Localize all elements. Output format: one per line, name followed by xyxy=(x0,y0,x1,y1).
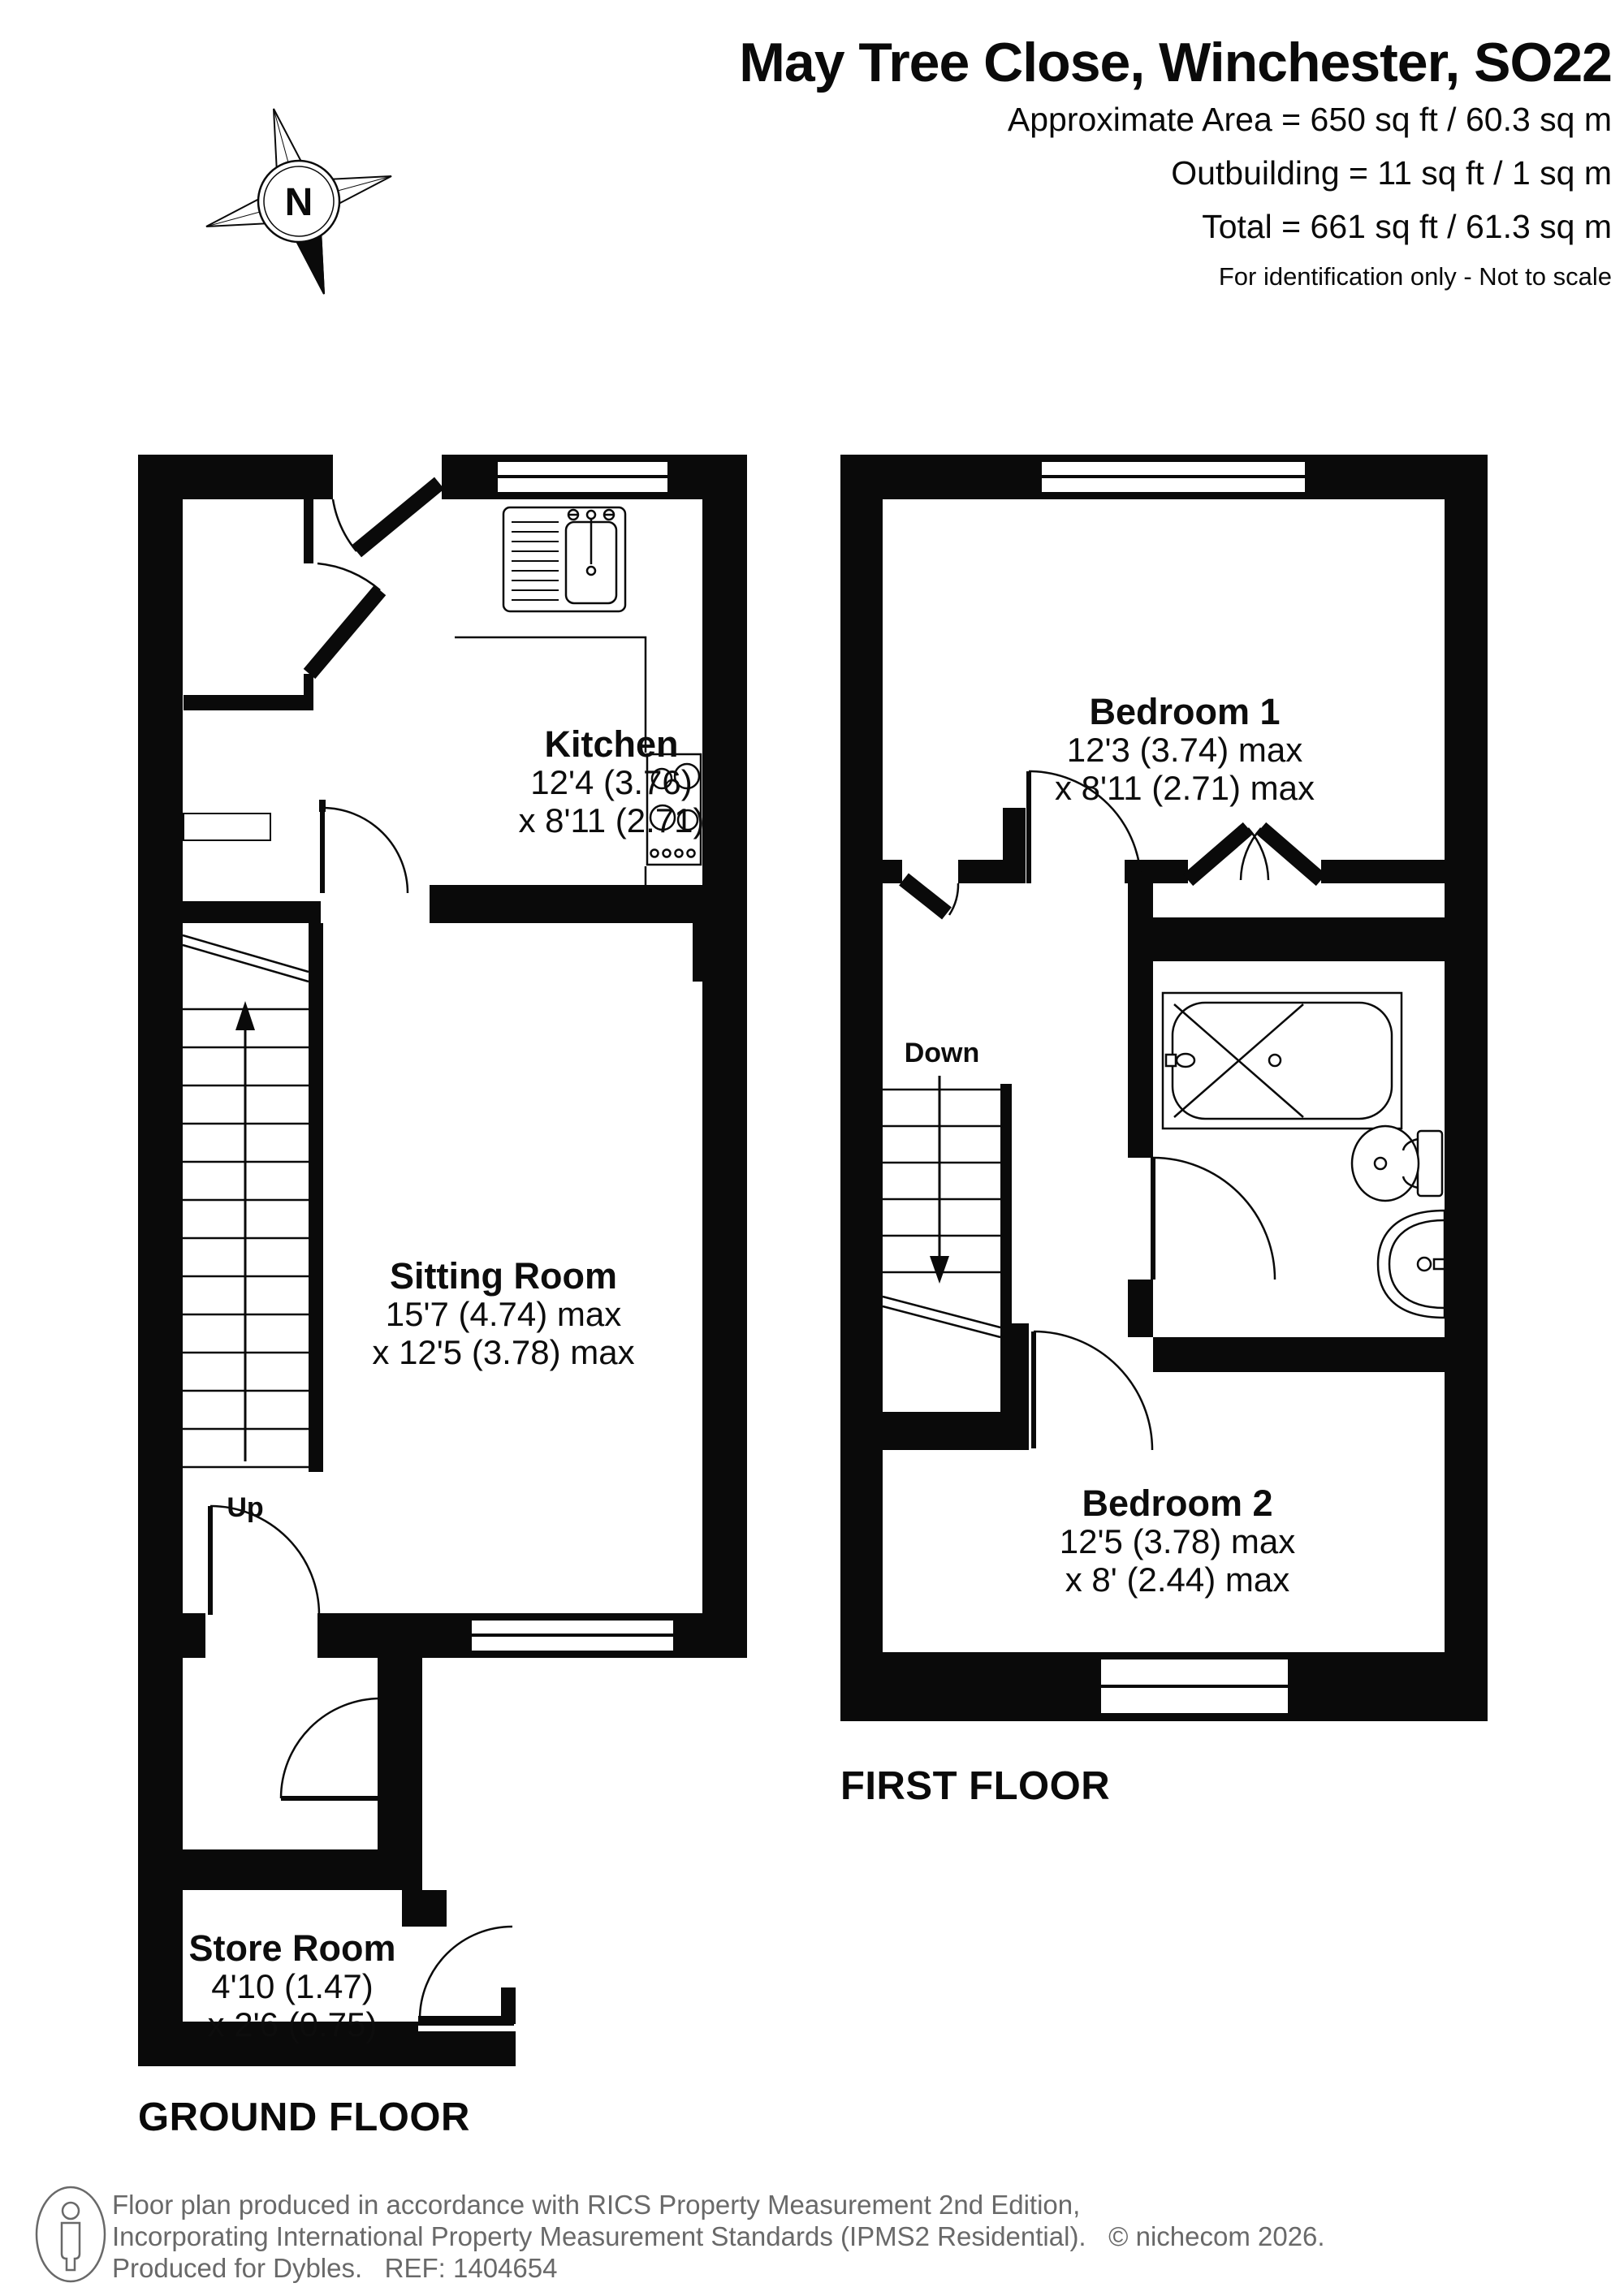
first-floor-caption: FIRST FLOOR xyxy=(840,1763,1110,1809)
bedroom1-name: Bedroom 1 xyxy=(1022,693,1347,731)
header: May Tree Close, Winchester, SO22 Approxi… xyxy=(475,32,1612,300)
bath-icon xyxy=(1163,993,1402,1129)
bedroom1-dim1: 12'3 (3.74) max xyxy=(1022,731,1347,769)
kitchen-dim2: x 8'11 (2.71) xyxy=(449,801,774,839)
down-arrow-head xyxy=(930,1256,949,1284)
washbasin-icon xyxy=(1378,1211,1445,1318)
bedroom2-dim1: 12'5 (3.78) max xyxy=(1015,1522,1340,1560)
bifold-door-right-leaf xyxy=(1261,828,1321,880)
store-door-arc xyxy=(420,1927,512,2019)
floorplan-page: { "header": { "title": "May Tree Close, … xyxy=(0,0,1624,2296)
ground-doors xyxy=(210,483,514,2026)
compass-icon: N xyxy=(195,85,406,304)
kitchen-name: Kitchen xyxy=(449,725,774,763)
front-door-leaf xyxy=(356,483,439,551)
bathroom-door-arc xyxy=(1153,1158,1275,1280)
ground-floor-caption: GROUND FLOOR xyxy=(138,2095,470,2140)
person-icon xyxy=(32,2184,110,2285)
stairs-landing xyxy=(184,814,270,840)
store-room-dim1: 4'10 (1.47) xyxy=(171,1967,414,2005)
hall-door-arc xyxy=(317,563,380,590)
bedroom2-name: Bedroom 2 xyxy=(1015,1484,1340,1522)
stairs-down xyxy=(883,1076,1000,1337)
landing-door-leaf xyxy=(904,879,947,913)
total-area: Total = 661 sq ft / 61.3 sq m xyxy=(475,200,1612,253)
bedroom2-door-arc xyxy=(1034,1331,1152,1450)
store-room-dim2: x 2'6 (0.75) xyxy=(171,2005,414,2044)
compass-north-label: N xyxy=(285,181,313,224)
sink-icon xyxy=(503,507,625,611)
bathroom-fixtures xyxy=(1163,993,1445,1318)
store-room-label: Store Room 4'10 (1.47) x 2'6 (0.75) xyxy=(171,1929,414,2044)
sitting-room-dim1: 15'7 (4.74) max xyxy=(341,1295,666,1333)
footer: Floor plan produced in accordance with R… xyxy=(112,2189,1330,2284)
bedroom1-dim2: x 8'11 (2.71) max xyxy=(1022,769,1347,807)
front-door-arc xyxy=(333,499,356,551)
bedroom2-label: Bedroom 2 12'5 (3.78) max x 8' (2.44) ma… xyxy=(1015,1484,1340,1599)
stairs-down-label: Down xyxy=(893,1038,991,1069)
toilet-icon xyxy=(1352,1126,1442,1201)
sitting-room-name: Sitting Room xyxy=(341,1257,666,1295)
stairs-up-label: Up xyxy=(205,1492,286,1524)
bedroom2-dim2: x 8' (2.44) max xyxy=(1015,1560,1340,1599)
up-arrow-head xyxy=(235,1001,255,1030)
ground-windows xyxy=(470,460,675,1652)
landing-door-arc xyxy=(949,883,958,915)
approximate-area: Approximate Area = 650 sq ft / 60.3 sq m xyxy=(475,93,1612,146)
sitting-room-dim2: x 12'5 (3.78) max xyxy=(341,1333,666,1371)
store-door-leaf xyxy=(418,2016,514,2026)
porch-door-arc xyxy=(281,1698,381,1798)
sitting-room-label: Sitting Room 15'7 (4.74) max x 12'5 (3.7… xyxy=(341,1257,666,1371)
kitchen-label: Kitchen 12'4 (3.76) x 8'11 (2.71) xyxy=(449,725,774,839)
footer-line1: Floor plan produced in accordance with R… xyxy=(112,2189,1330,2220)
kitchen-dim1: 12'4 (3.76) xyxy=(449,763,774,801)
disclaimer: For identification only - Not to scale xyxy=(475,253,1612,300)
footer-line2: Incorporating International Property Mea… xyxy=(112,2220,1330,2252)
outbuilding-area: Outbuilding = 11 sq ft / 1 sq m xyxy=(475,146,1612,200)
bedroom1-label: Bedroom 1 12'3 (3.74) max x 8'11 (2.71) … xyxy=(1022,693,1347,807)
hall-door-leaf xyxy=(309,590,380,674)
store-room-name: Store Room xyxy=(171,1929,414,1967)
kitchen-door-arc xyxy=(322,808,408,893)
footer-line3: Produced for Dybles. REF: 1404654 xyxy=(112,2252,1330,2284)
page-title: May Tree Close, Winchester, SO22 xyxy=(475,32,1612,93)
bifold-door-left-leaf xyxy=(1188,828,1248,880)
